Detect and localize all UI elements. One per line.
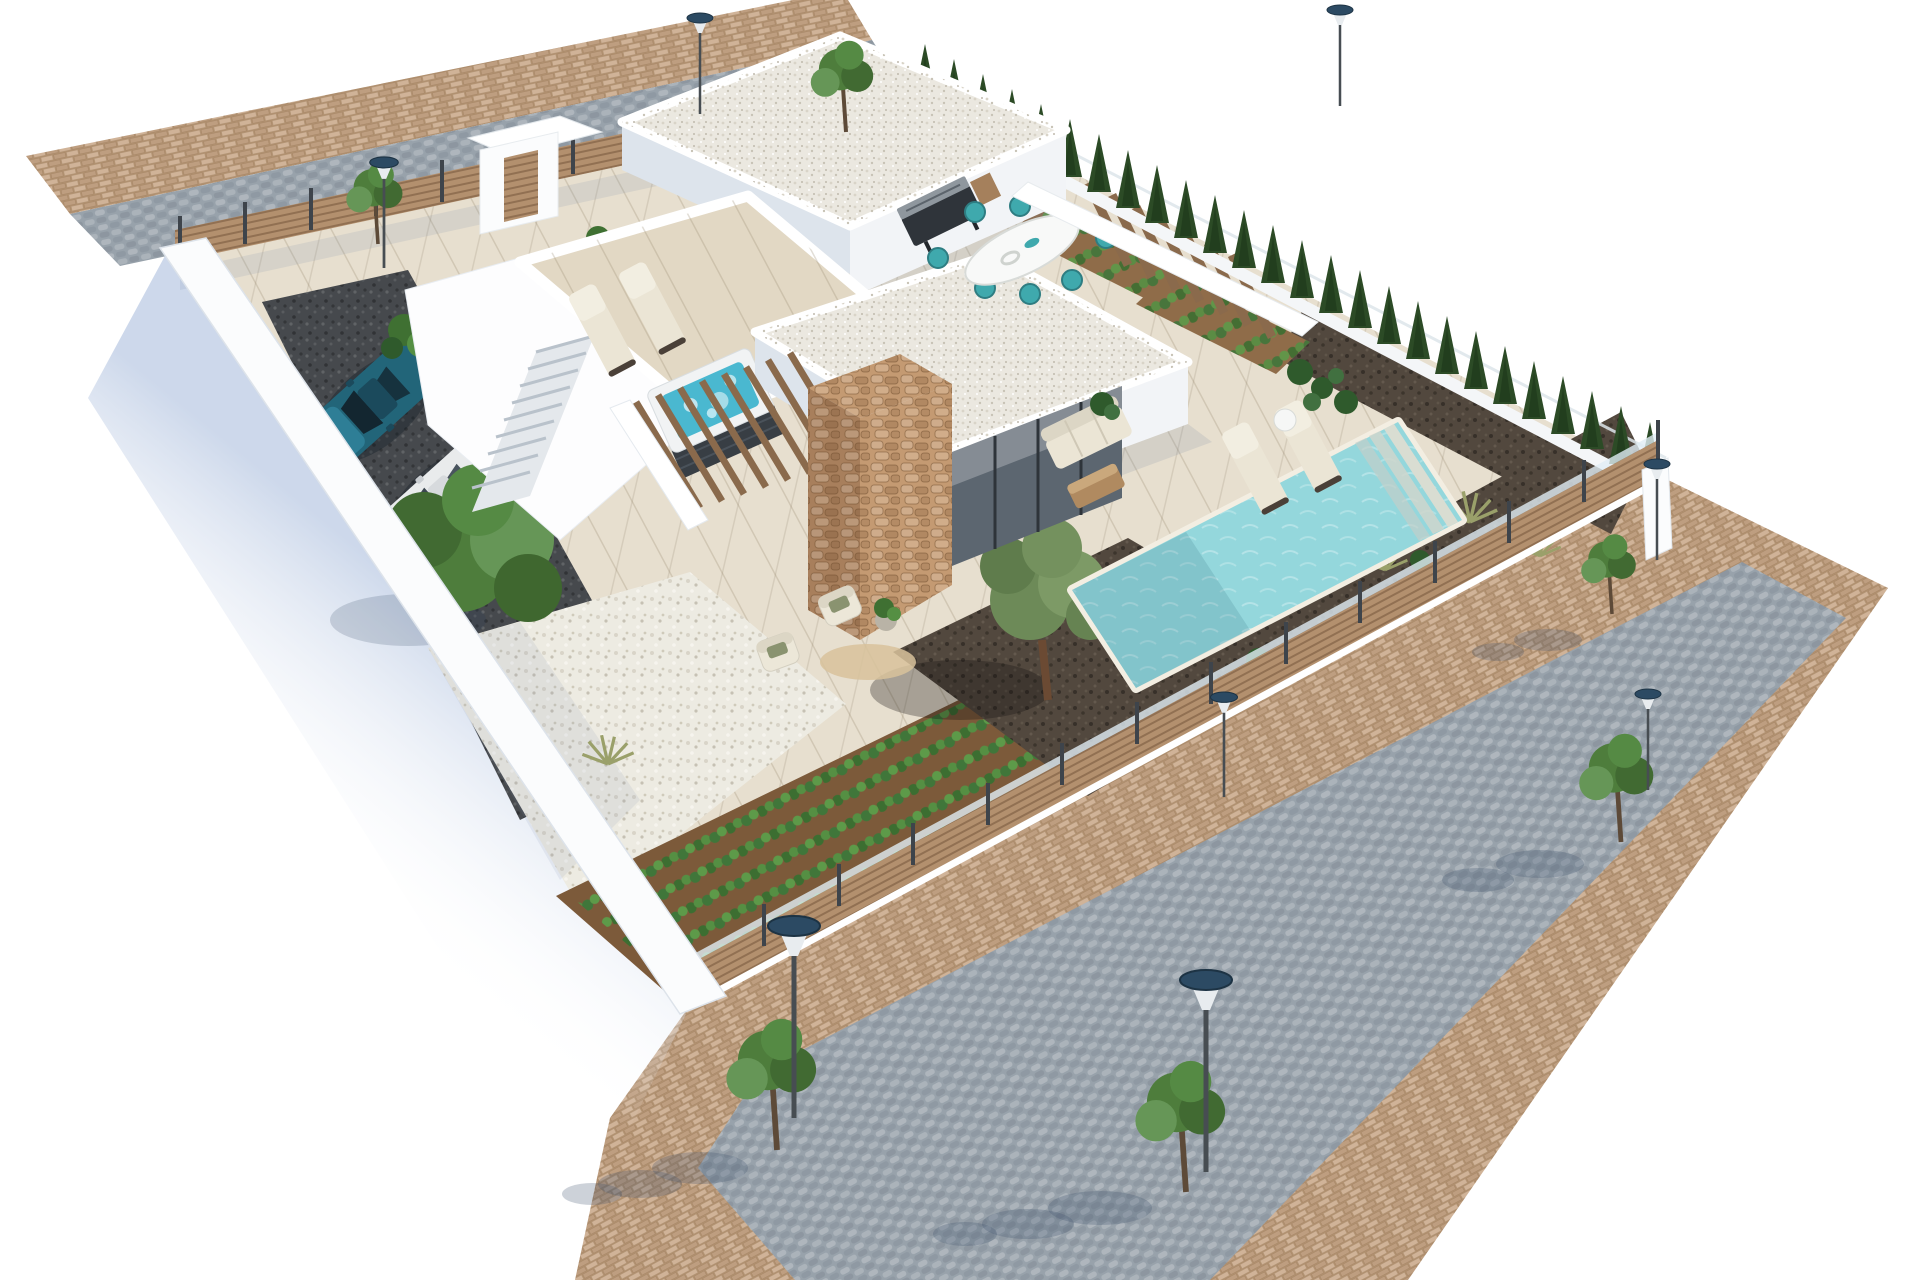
round-rug	[820, 644, 916, 680]
render-canvas	[0, 0, 1920, 1280]
villa-aerial-render	[0, 0, 1920, 1280]
pool-side-table	[1274, 409, 1296, 431]
corner-pillar-lamp	[1642, 458, 1672, 560]
